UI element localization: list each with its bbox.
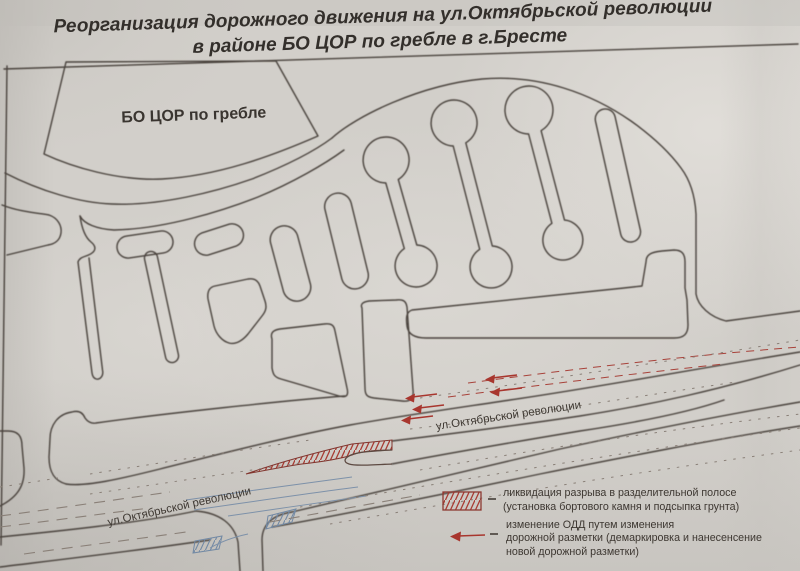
svg-text:изменение ОДД путем изменения: изменение ОДД путем изменения (506, 519, 674, 531)
svg-text:новой дорожной разметки): новой дорожной разметки) (506, 546, 639, 558)
svg-text:(установка бортового камня и п: (установка бортового камня и подсыпка гр… (503, 501, 739, 513)
svg-text:дорожной разметки (демаркировк: дорожной разметки (демаркировка и нанесе… (506, 532, 762, 544)
svg-text:ликвидация разрыва в разделите: ликвидация разрыва в разделительной поло… (503, 487, 737, 499)
